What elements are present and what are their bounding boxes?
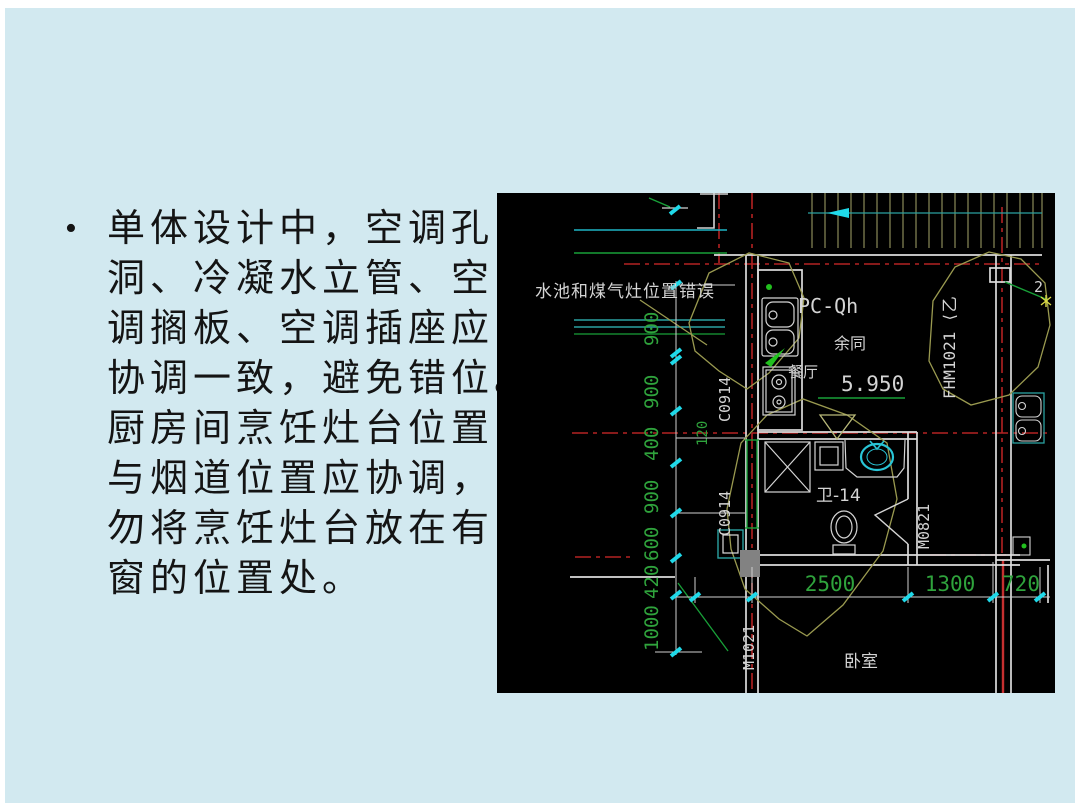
dim-label: 900 [641,375,663,409]
paragraph-line: 协调一致，避免错位。 [107,354,521,404]
dim-label: 2500 [805,572,856,596]
paragraph-line: 洞、冷凝水立管、空 [107,254,521,304]
cad-drawing: 900 900 400 900 600 420 1000 120 [497,193,1055,693]
label-bathroom: 卫-14 [816,486,861,506]
dim-label: 1000 [641,605,663,651]
label-level: 5.950 [841,372,904,396]
cad-floorplan-image: 900 900 400 900 600 420 1000 120 [497,193,1055,693]
bullet-paragraph: • 单体设计中，空调孔 洞、冷凝水立管、空 调搁板、空调插座应 协调一致，避免错… [61,204,521,604]
dim-label-offset: 120 [695,421,711,446]
annotation-error-note: 水池和煤气灶位置错误 [535,282,715,302]
label-window-c0914: C0914 [716,491,734,536]
label-door-m1021: M1021 [740,625,758,670]
dim-label: 600 [641,527,663,561]
label-pc-qh: PC-Qh [798,294,858,318]
presentation-slide: • 单体设计中，空调孔 洞、冷凝水立管、空 调搁板、空调插座应 协调一致，避免错… [5,8,1075,803]
label-window-c0914: C0914 [716,377,734,422]
dim-label: 1300 [925,572,976,596]
paragraph-line: 窗的位置处。 [107,554,521,604]
label-grid-two: 2 [1034,278,1043,296]
pipe-dot [766,284,772,290]
dim-label: 420 [641,565,663,599]
paragraph-line: 勿将烹饪灶台放在有 [107,504,521,554]
dim-label: 900 [641,480,663,514]
label-dining-room: 餐厅 [788,363,818,381]
paragraph-line: 单体设计中，空调孔 [107,204,521,254]
screenshot-root: { "slide": { "background_color": "#d2e9f… [0,0,1080,811]
dim-label: 900 [641,312,663,346]
bullet-marker: • [65,210,77,248]
dim-label: 720 [1002,572,1040,596]
paragraph-line: 与烟道位置应协调， [107,454,521,504]
label-fhm1021: FHM1021 ⟨乙 [940,296,959,399]
label-door-m0821: M0821 [915,504,933,549]
label-bedroom: 卧室 [844,652,878,672]
paragraph-line: 调搁板、空调插座应 [107,304,521,354]
paragraph-line: 厨房间烹饪灶台位置 [107,404,521,454]
label-same-as: 余同 [834,334,866,353]
gray-block [740,550,760,577]
dim-label: 400 [641,427,663,461]
paragraph: 单体设计中，空调孔 洞、冷凝水立管、空 调搁板、空调插座应 协调一致，避免错位。… [107,204,521,604]
cad-background [497,193,1055,693]
